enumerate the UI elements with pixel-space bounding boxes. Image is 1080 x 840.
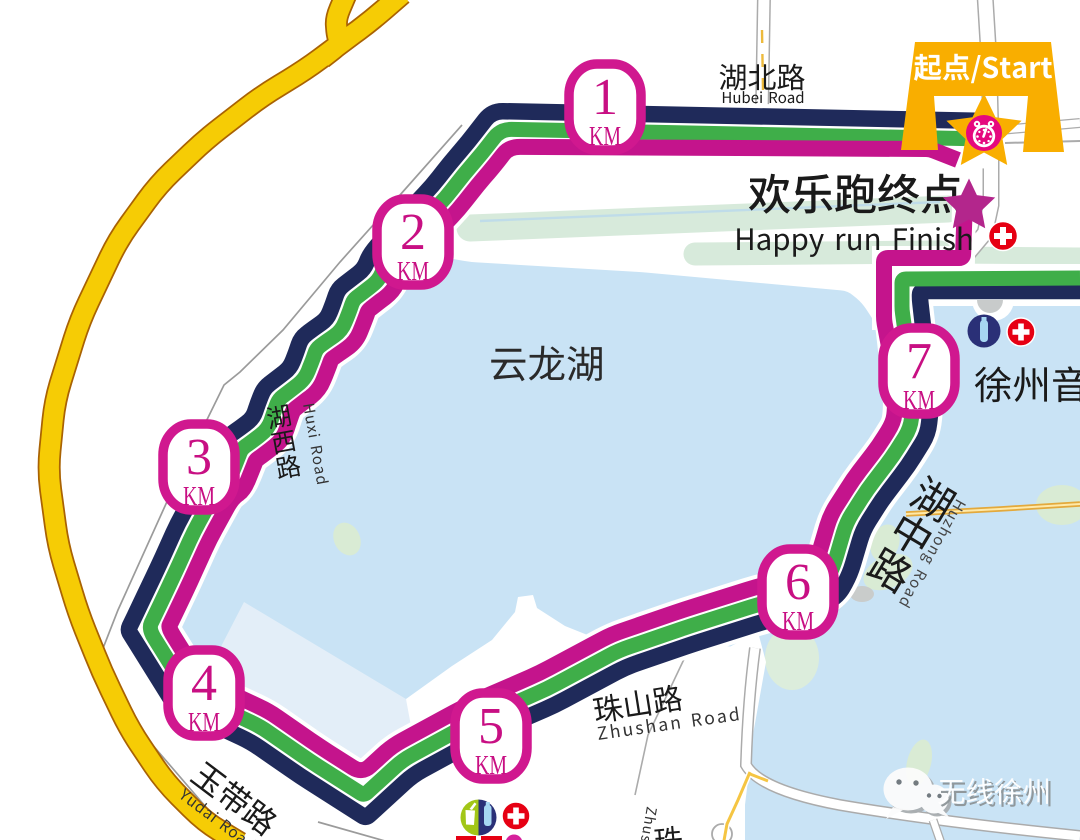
svg-text:5: 5 (478, 698, 504, 755)
svg-text:7: 7 (906, 333, 932, 390)
svg-text:KM: KM (589, 121, 621, 151)
svg-text:KM: KM (475, 750, 507, 780)
svg-text:4: 4 (191, 655, 217, 712)
svg-text:KM: KM (188, 707, 220, 737)
svg-text:KM: KM (397, 256, 429, 286)
svg-text:3: 3 (186, 429, 212, 486)
svg-text:1: 1 (592, 69, 618, 126)
svg-text:KM: KM (903, 385, 935, 415)
svg-text:2: 2 (400, 204, 426, 261)
svg-text:6: 6 (785, 554, 811, 611)
svg-text:KM: KM (782, 606, 814, 636)
svg-text:KM: KM (183, 481, 215, 511)
